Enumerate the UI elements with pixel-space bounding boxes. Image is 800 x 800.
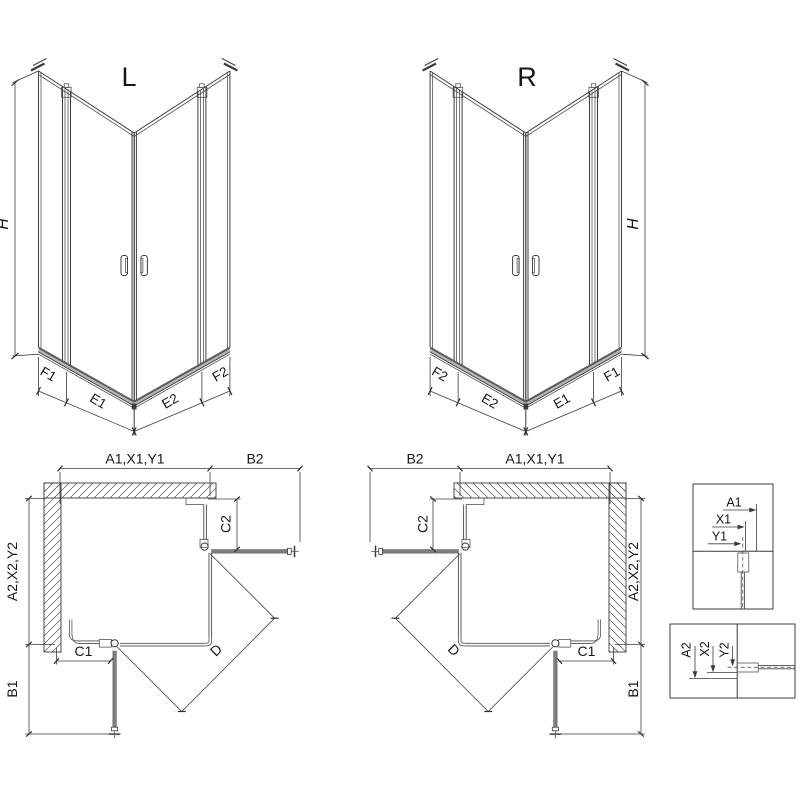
plan-right-width-dim: A1,X1,Y1 — [505, 451, 564, 467]
plan-view-left — [25, 466, 303, 739]
technical-drawing-sheet: L H F1 E1 E2 F2 R H F2 E2 E1 F1 A1,X1,Y1… — [0, 0, 800, 800]
plan-right-b1-dim: B1 — [625, 680, 641, 697]
iso-right-segment-f2: F2 — [429, 364, 450, 385]
iso-right-segment-f1: F1 — [601, 364, 622, 385]
plan-right-diagonal-dim: D — [445, 641, 463, 659]
detail-top-y1: Y1 — [712, 530, 727, 544]
plan-right-c1-dim: C1 — [578, 643, 596, 659]
shower-enclosure-drawing: L H F1 E1 E2 F2 R H F2 E2 E1 F1 A1,X1,Y1… — [0, 0, 800, 800]
iso-left-segment-f2: F2 — [210, 364, 231, 385]
detail-bottom-y2: Y2 — [718, 642, 732, 657]
plan-left-diagonal-dim: D — [207, 641, 225, 659]
iso-right-version-label: R — [517, 62, 537, 92]
plan-left-width-dim: A1,X1,Y1 — [105, 451, 164, 467]
plan-left-c1-dim: C1 — [75, 643, 93, 659]
detail-top-a1: A1 — [726, 496, 741, 510]
detail-box-wall-profile-side — [670, 624, 795, 698]
iso-right-segment-e1: E1 — [551, 390, 573, 411]
plan-right-b2-dim: B2 — [406, 451, 423, 467]
iso-right-segment-e2: E2 — [479, 390, 501, 411]
detail-bottom-a2: A2 — [680, 642, 694, 657]
plan-right-c2-dim: C2 — [415, 515, 431, 533]
iso-right-height-label: H — [625, 218, 642, 230]
plan-left-depth-dim: A2,X2,Y2 — [4, 542, 20, 601]
detail-top-x1: X1 — [716, 513, 731, 527]
iso-left-segment-e2: E2 — [159, 390, 181, 411]
plan-left-c2-dim: C2 — [218, 515, 234, 533]
iso-left-height-label: H — [0, 218, 12, 230]
plan-right-depth-dim: A2,X2,Y2 — [625, 542, 641, 601]
plan-left-b2-dim: B2 — [246, 451, 263, 467]
detail-bottom-x2: X2 — [698, 641, 712, 656]
iso-left-segment-e1: E1 — [87, 390, 109, 411]
iso-left-version-label: L — [121, 62, 136, 92]
plan-left-b1-dim: B1 — [4, 680, 20, 697]
plan-view-right — [368, 466, 646, 739]
iso-left-segment-f1: F1 — [38, 364, 59, 385]
